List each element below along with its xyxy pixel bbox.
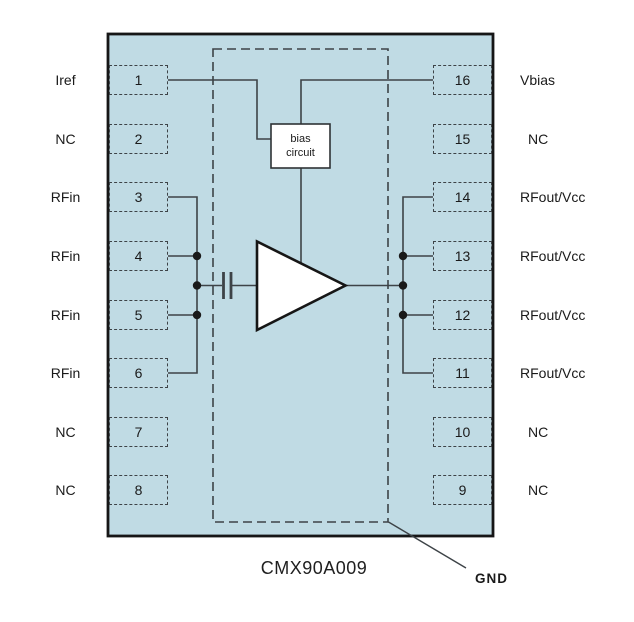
pin-box-12: 12	[433, 300, 492, 330]
pin-label-vbias: Vbias	[520, 70, 630, 90]
junction-dot	[193, 281, 201, 289]
pin-label-nc: NC	[520, 480, 634, 500]
pin-label-rfout-vcc: RFout/Vcc	[520, 363, 630, 383]
pin-number: 16	[455, 72, 471, 88]
bias-circuit-line2: circuit	[286, 146, 315, 160]
pin-label-nc: NC	[33, 422, 98, 442]
pin-label-nc: NC	[33, 129, 98, 149]
gnd-label: GND	[475, 571, 508, 586]
pin-box-7: 7	[109, 417, 168, 447]
pin-label-rfin: RFin	[33, 305, 98, 325]
pin-box-13: 13	[433, 241, 492, 271]
junction-dot	[193, 311, 201, 319]
pinout-diagram: 1 2 3 4 5 6 7 8 16 15 14 13 12 11 10 9 I…	[0, 0, 634, 622]
junction-dot	[193, 252, 201, 260]
pin-number: 5	[135, 307, 143, 323]
pin-box-5: 5	[109, 300, 168, 330]
pin-number: 1	[135, 72, 143, 88]
pin-box-9: 9	[433, 475, 492, 505]
pin-number: 9	[459, 482, 467, 498]
pin-number: 3	[135, 189, 143, 205]
pin-box-3: 3	[109, 182, 168, 212]
pin-number: 2	[135, 131, 143, 147]
chip-title: CMX90A009	[234, 558, 394, 579]
pin-box-16: 16	[433, 65, 492, 95]
pin-box-10: 10	[433, 417, 492, 447]
pin-box-15: 15	[433, 124, 492, 154]
pin-box-14: 14	[433, 182, 492, 212]
pin-box-2: 2	[109, 124, 168, 154]
pin-label-rfout-vcc: RFout/Vcc	[520, 305, 630, 325]
pin-number: 8	[135, 482, 143, 498]
pin-box-1: 1	[109, 65, 168, 95]
pin-number: 13	[455, 248, 471, 264]
junction-dot	[399, 252, 407, 260]
pin-label-rfin: RFin	[33, 187, 98, 207]
pin-label-nc: NC	[520, 129, 634, 149]
pin-box-11: 11	[433, 358, 492, 388]
pin-box-8: 8	[109, 475, 168, 505]
pin-label-rfout-vcc: RFout/Vcc	[520, 187, 630, 207]
pin-number: 6	[135, 365, 143, 381]
pin-label-nc: NC	[33, 480, 98, 500]
pin-label-rfout-vcc: RFout/Vcc	[520, 246, 630, 266]
pin-label-iref: Iref	[33, 70, 98, 90]
junction-dot	[399, 311, 407, 319]
pin-number: 10	[455, 424, 471, 440]
pin-box-6: 6	[109, 358, 168, 388]
pin-number: 7	[135, 424, 143, 440]
pin-number: 11	[455, 365, 470, 381]
pin-number: 15	[455, 131, 471, 147]
pin-label-nc: NC	[520, 422, 634, 442]
pin-label-rfin: RFin	[33, 246, 98, 266]
junction-dot	[399, 281, 407, 289]
bias-circuit-line1: bias	[290, 132, 310, 146]
pin-box-4: 4	[109, 241, 168, 271]
bias-circuit-label: bias circuit	[271, 124, 330, 168]
pin-number: 14	[455, 189, 471, 205]
pin-number: 12	[455, 307, 471, 323]
pin-label-rfin: RFin	[33, 363, 98, 383]
pin-number: 4	[135, 248, 143, 264]
